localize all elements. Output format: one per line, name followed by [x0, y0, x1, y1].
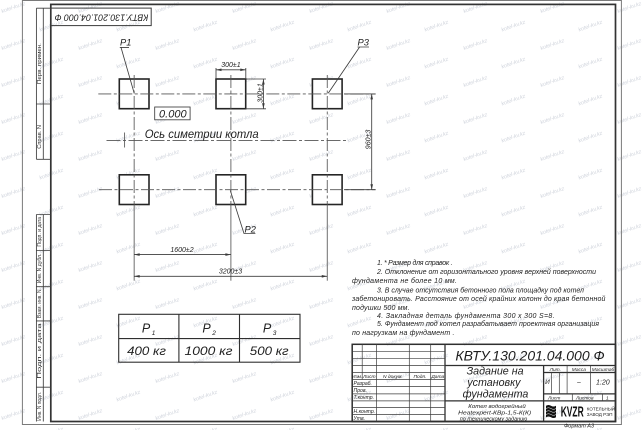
svg-text:по нагрузкам на фундамент .: по нагрузкам на фундамент . [352, 329, 454, 337]
svg-text:Пров.: Пров. [354, 388, 367, 394]
svg-text:И: И [545, 379, 550, 386]
svg-text:Лист: Лист [547, 395, 560, 401]
svg-text:P3: P3 [358, 37, 370, 47]
svg-text:1000 кг: 1000 кг [185, 346, 233, 358]
svg-text:300±1: 300±1 [221, 62, 241, 69]
svg-text:Масштаб: Масштаб [592, 367, 615, 373]
svg-text:Лист: Лист [362, 374, 376, 380]
svg-text:установку: установку [466, 377, 521, 389]
svg-text:P: P [142, 321, 151, 335]
svg-text:Подп. и дата: Подп. и дата [37, 323, 43, 379]
svg-text:1:20: 1:20 [596, 380, 610, 387]
svg-text:Ось симетрии котла: Ось симетрии котла [145, 127, 259, 141]
svg-text:4. Закладная деталь фундамент: 4. Закладная деталь фундамента 300 х 300… [377, 312, 555, 320]
svg-text:Дата: Дата [430, 374, 444, 380]
svg-text:Перв. примен.: Перв. примен. [37, 43, 43, 84]
svg-text:фундамента: фундамента [463, 388, 529, 400]
svg-text:P: P [202, 321, 211, 335]
svg-text:Листов: Листов [575, 395, 594, 401]
svg-text:0.000: 0.000 [159, 109, 187, 121]
svg-text:Инв. N подл.: Инв. N подл. [37, 392, 43, 421]
svg-text:ЗАВОД РЭП: ЗАВОД РЭП [587, 412, 613, 417]
svg-text:KVZR: KVZR [561, 405, 584, 421]
svg-text:3: 3 [273, 330, 277, 337]
svg-text:P: P [263, 321, 272, 335]
svg-text:Утв.: Утв. [354, 416, 366, 422]
svg-text:3200±3: 3200±3 [219, 269, 242, 276]
svg-text:Разраб.: Разраб. [354, 381, 372, 387]
svg-text:P2: P2 [245, 225, 257, 235]
svg-text:Лит.: Лит. [549, 367, 561, 373]
svg-text:1600±2: 1600±2 [170, 247, 193, 254]
svg-text:Справ. N: Справ. N [37, 125, 43, 149]
svg-text:Подп.: Подп. [413, 374, 426, 380]
svg-text:КВТУ.130.201.04.000 Ф: КВТУ.130.201.04.000 Ф [55, 12, 149, 22]
svg-text:фундамента не более 10 мм.: фундамента не более 10 мм. [352, 277, 457, 285]
svg-text:N докум.: N докум. [383, 374, 403, 380]
svg-text:Подп. и дата: Подп. и дата [37, 217, 43, 247]
svg-text:Задание на: Задание на [467, 366, 524, 378]
svg-text:КВТУ.130.201.04.000 Ф: КВТУ.130.201.04.000 Ф [455, 347, 604, 363]
svg-text:КОТЕЛЬНЫЙ: КОТЕЛЬНЫЙ [587, 404, 615, 411]
svg-text:P1: P1 [120, 38, 131, 48]
svg-text:Изм.: Изм. [352, 374, 362, 380]
svg-text:960±3: 960±3 [366, 130, 373, 150]
svg-text:2. Отклонение от горизонтальн: 2. Отклонение от горизонтального уровня … [376, 268, 596, 276]
svg-text:300±1: 300±1 [257, 83, 264, 103]
svg-text:Инв. N дубл.: Инв. N дубл. [37, 254, 43, 284]
svg-text:Н.контр.: Н.контр. [354, 409, 376, 415]
svg-text:Котел водогрейный: Котел водогрейный [468, 403, 526, 410]
svg-text:подушки 500 мм.: подушки 500 мм. [352, 304, 410, 312]
svg-text:400 кг: 400 кг [127, 346, 166, 358]
svg-text:забетонировать. Расстояние от: забетонировать. Расстояние от осей крайн… [351, 295, 605, 303]
svg-text:3. В случае отсутствия бетонн: 3. В случае отсутствия бетонного пола пл… [377, 286, 584, 294]
svg-text:–: – [576, 379, 581, 386]
svg-text:1: 1 [152, 330, 156, 337]
svg-text:Формат А3: Формат А3 [564, 424, 595, 430]
svg-text:Масса: Масса [572, 367, 587, 373]
svg-text:500 кг: 500 кг [250, 346, 289, 358]
svg-text:5. Фундамент под котел разраб: 5. Фундамент под котел разрабатывает про… [377, 320, 599, 328]
svg-text:1. * Размер для справок .: 1. * Размер для справок . [377, 259, 453, 267]
svg-text:2: 2 [211, 330, 216, 337]
svg-text:по техническому заданию: по техническому заданию [460, 417, 528, 423]
svg-text:1: 1 [606, 395, 609, 401]
svg-text:Взам. инв. N: Взам. инв. N [37, 289, 43, 318]
svg-text:Т.контр.: Т.контр. [354, 395, 375, 401]
